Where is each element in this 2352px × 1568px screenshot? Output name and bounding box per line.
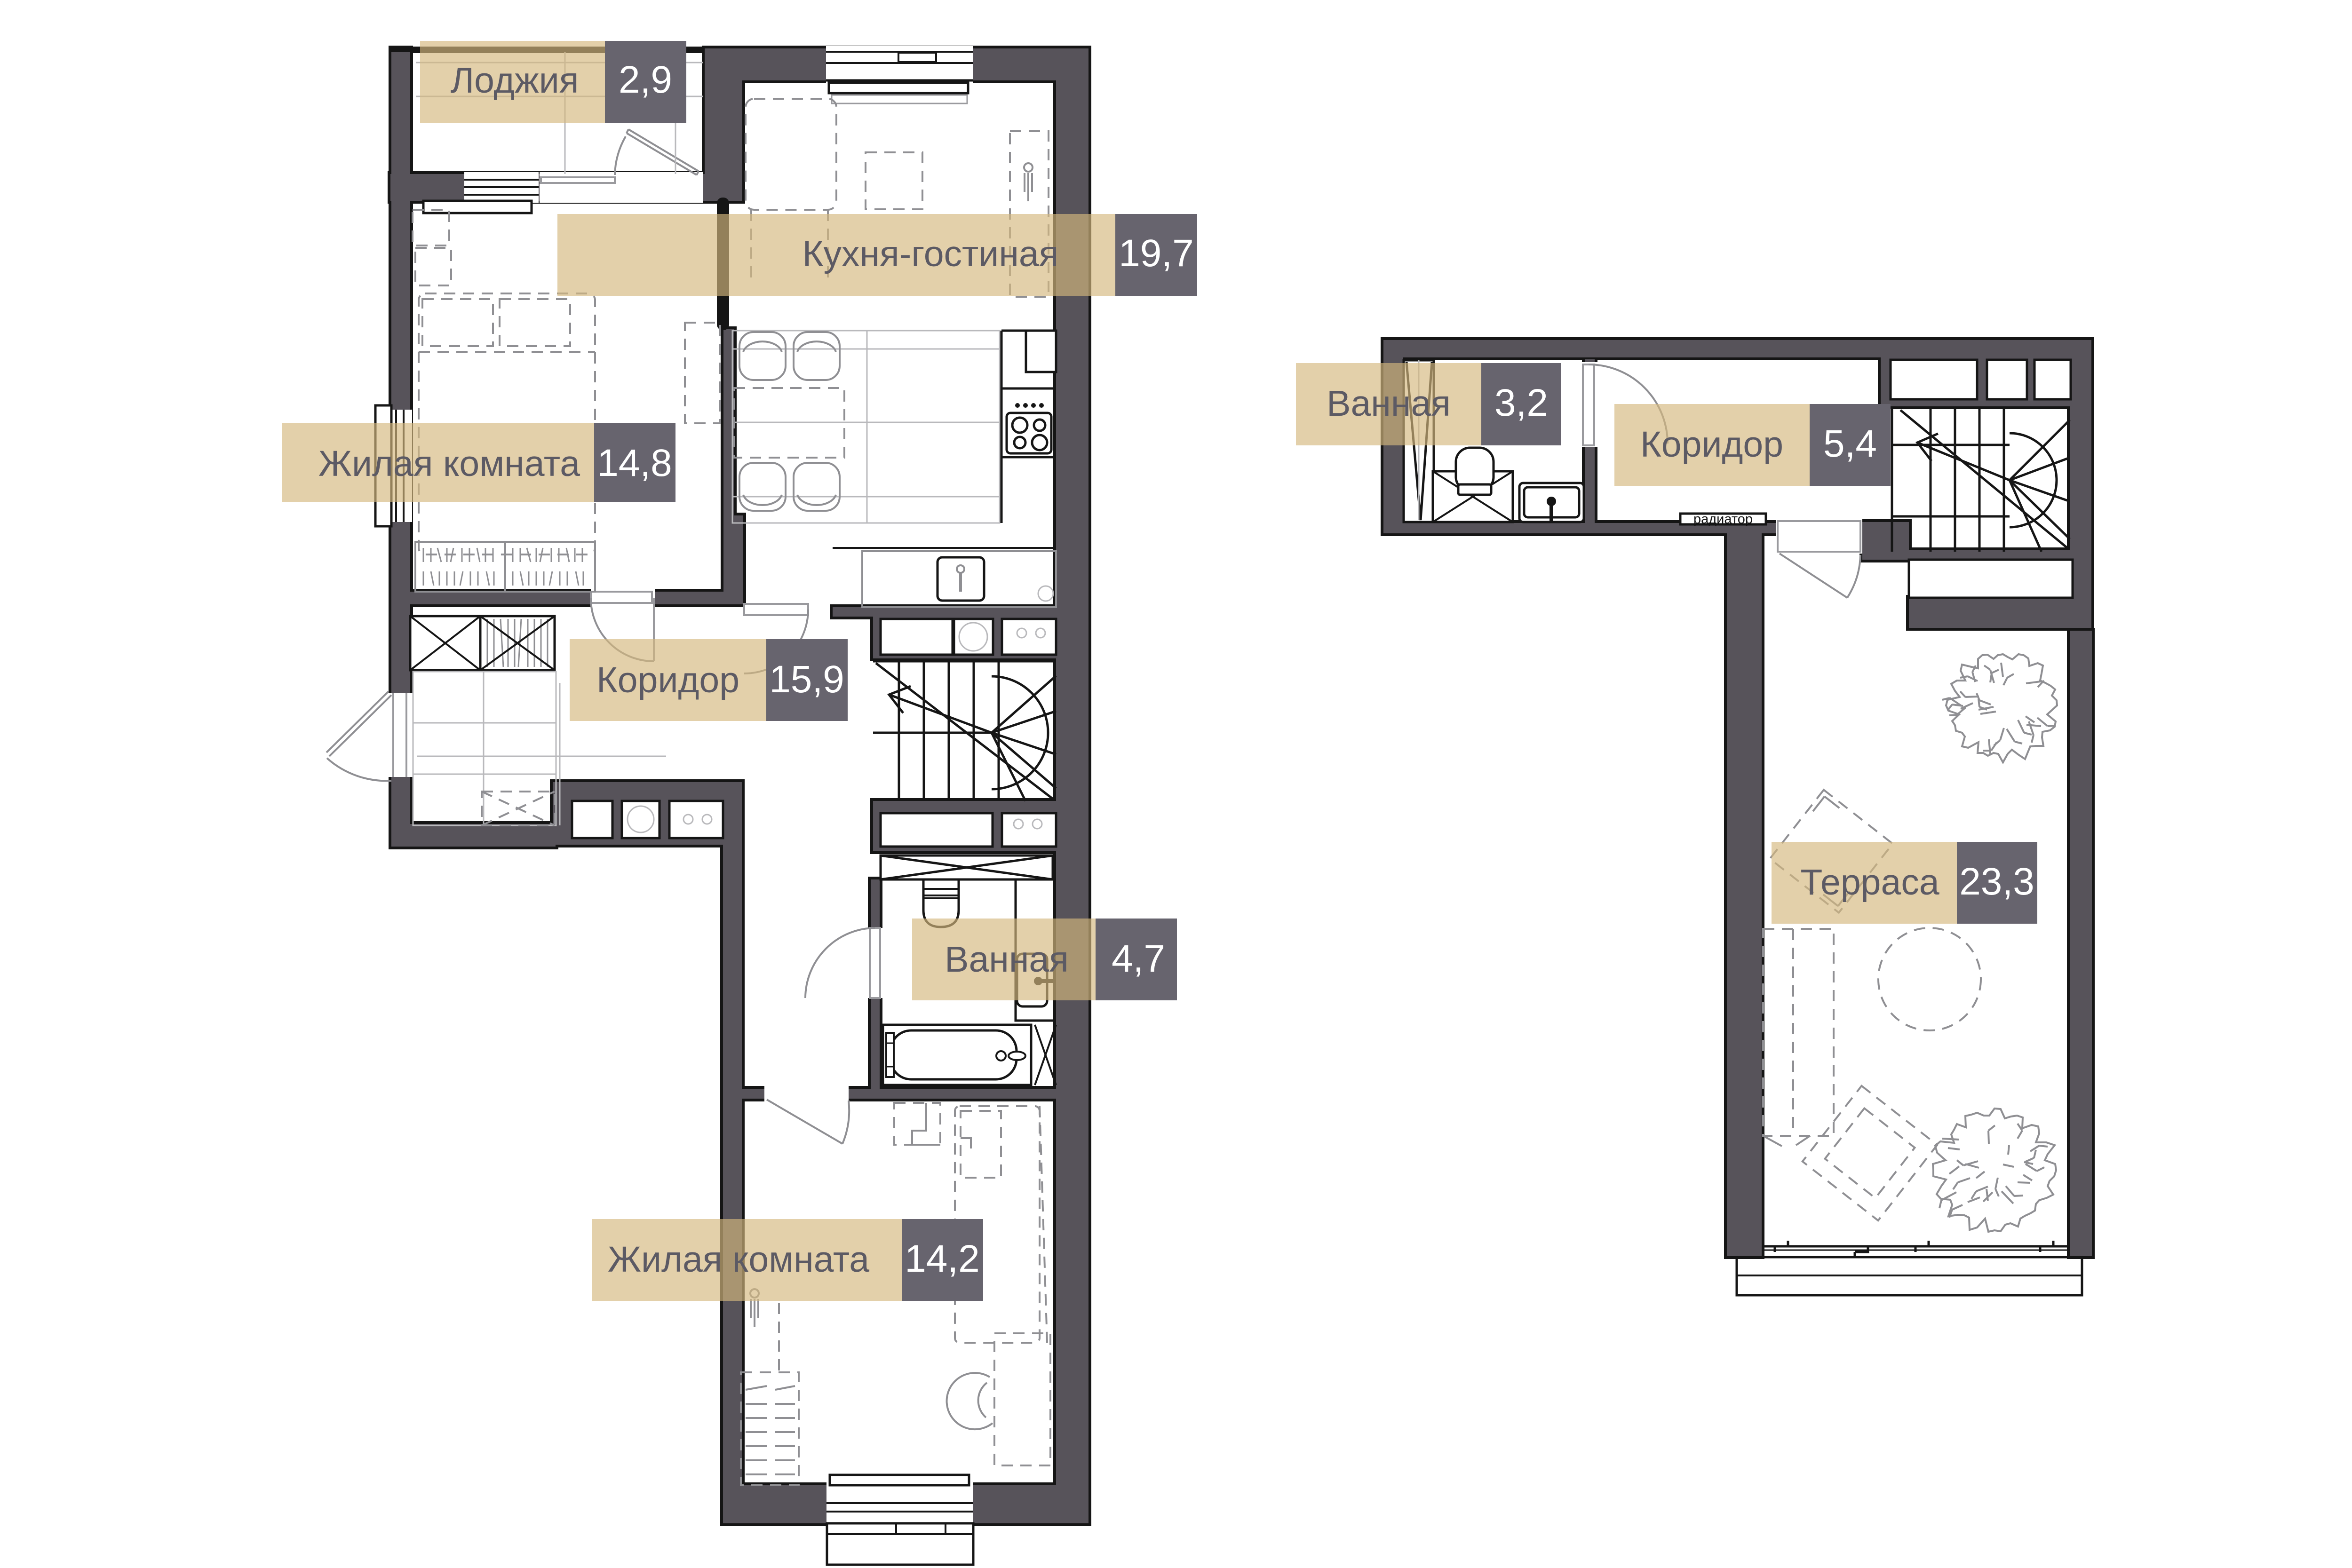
svg-text:5,4: 5,4 xyxy=(1823,422,1877,465)
svg-text:Терраса: Терраса xyxy=(1800,862,1939,903)
svg-text:Жилая комната: Жилая комната xyxy=(608,1239,869,1280)
svg-text:Коридор: Коридор xyxy=(1640,424,1783,465)
svg-text:Лоджия: Лоджия xyxy=(451,60,579,101)
svg-text:14,8: 14,8 xyxy=(597,442,672,484)
svg-text:3,2: 3,2 xyxy=(1494,381,1548,424)
svg-text:Ванная: Ванная xyxy=(945,939,1069,980)
svg-text:радиатор: радиатор xyxy=(1693,512,1753,527)
svg-text:23,3: 23,3 xyxy=(1959,860,2034,903)
svg-text:14,2: 14,2 xyxy=(905,1237,980,1280)
svg-text:Ванная: Ванная xyxy=(1327,383,1451,424)
svg-text:15,9: 15,9 xyxy=(769,658,844,701)
svg-text:Жилая комната: Жилая комната xyxy=(318,443,580,484)
svg-text:4,7: 4,7 xyxy=(1112,937,1165,980)
svg-text:Коридор: Коридор xyxy=(596,660,739,700)
svg-text:19,7: 19,7 xyxy=(1119,232,1194,275)
svg-text:Кухня-гостиная: Кухня-гостиная xyxy=(803,234,1059,274)
svg-text:2,9: 2,9 xyxy=(619,58,672,101)
